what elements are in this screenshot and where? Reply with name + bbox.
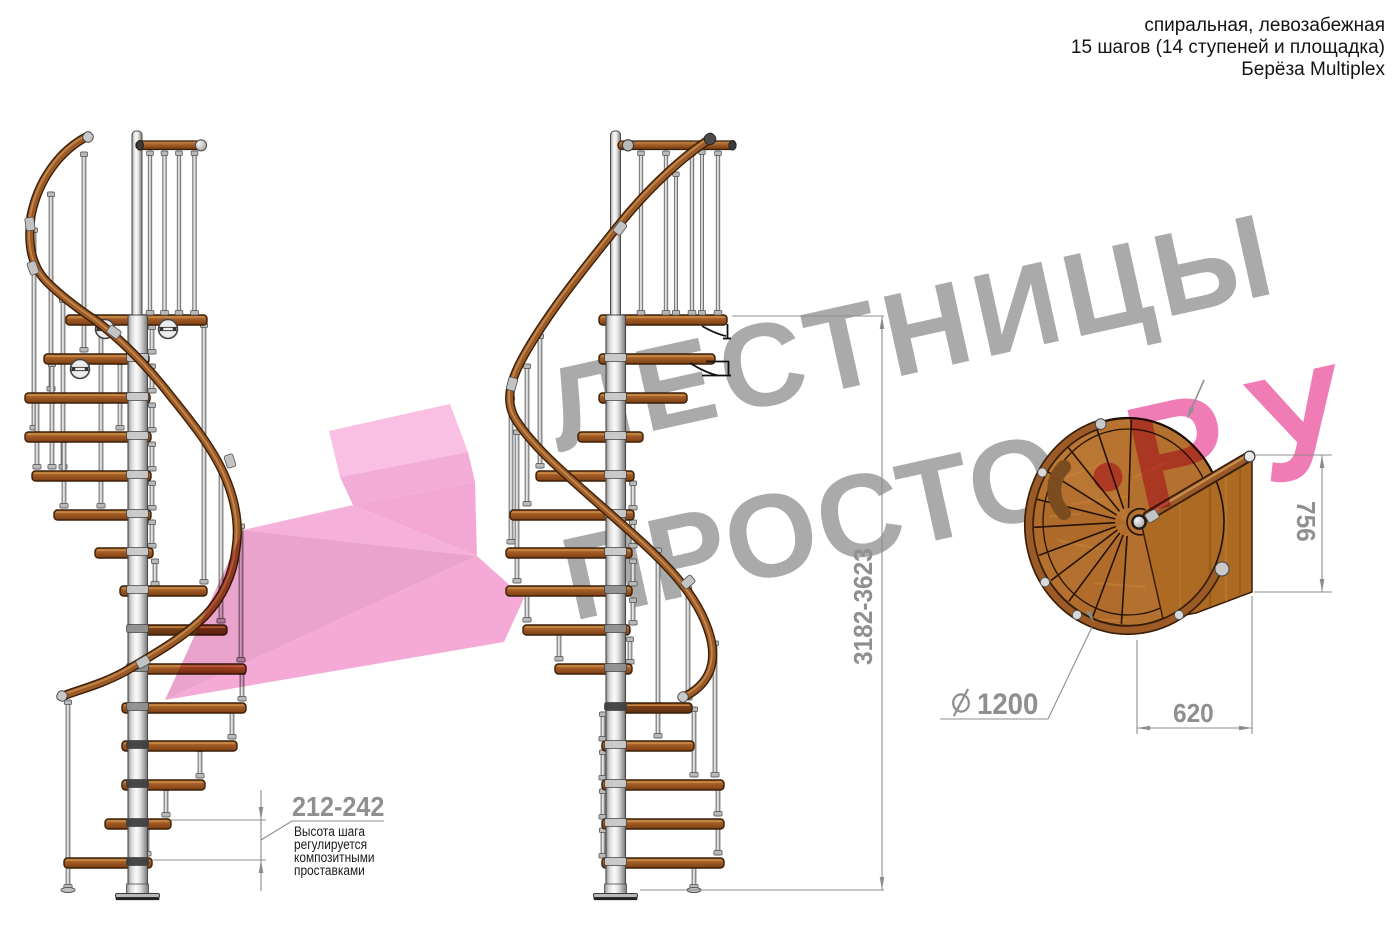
svg-text:212-242: 212-242 [292,791,384,823]
svg-text:Берёза Multiplex: Берёза Multiplex [1241,59,1385,80]
svg-text:спиральная, левозабежная: спиральная, левозабежная [1144,15,1385,36]
svg-text:756: 756 [1291,501,1320,542]
svg-text:3182-3623: 3182-3623 [849,548,878,665]
svg-text:620: 620 [1173,699,1214,728]
svg-text:15 шагов (14 ступеней и площад: 15 шагов (14 ступеней и площадка) [1071,37,1385,58]
svg-text:Высота шагарегулируетсякомпози: Высота шагарегулируетсякомпозитнымипрост… [294,823,375,878]
svg-text:1200: 1200 [977,688,1038,721]
